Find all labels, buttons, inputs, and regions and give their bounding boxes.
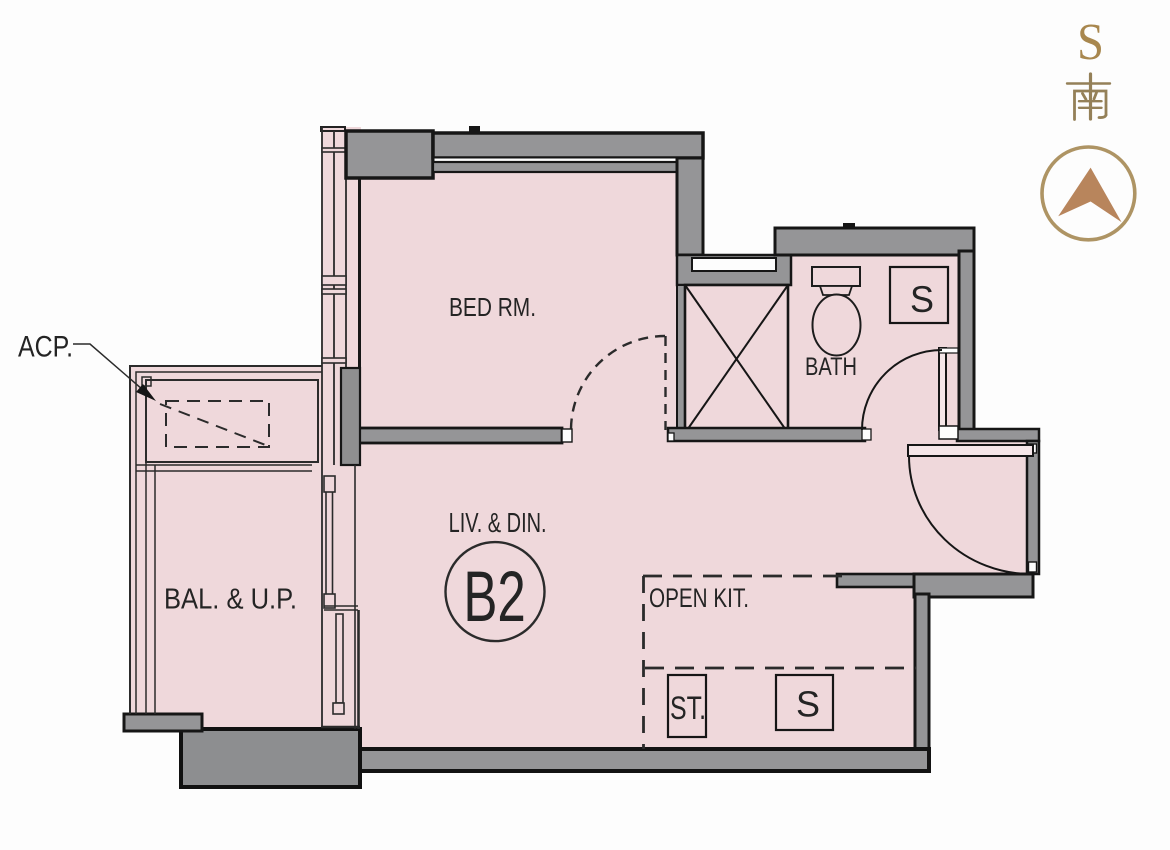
svg-text:ACP.: ACP. — [18, 331, 73, 364]
svg-text:S: S — [1077, 14, 1104, 71]
svg-text:BED RM.: BED RM. — [449, 292, 536, 322]
svg-text:LIV. & DIN.: LIV. & DIN. — [449, 507, 547, 538]
svg-text:B2: B2 — [463, 558, 525, 637]
svg-text:ST.: ST. — [670, 690, 706, 726]
svg-text:BATH: BATH — [805, 353, 857, 381]
svg-text:S: S — [910, 279, 934, 320]
svg-text:BAL. & U.P.: BAL. & U.P. — [164, 584, 297, 616]
svg-text:OPEN KIT.: OPEN KIT. — [649, 583, 749, 613]
svg-text:S: S — [796, 684, 820, 725]
